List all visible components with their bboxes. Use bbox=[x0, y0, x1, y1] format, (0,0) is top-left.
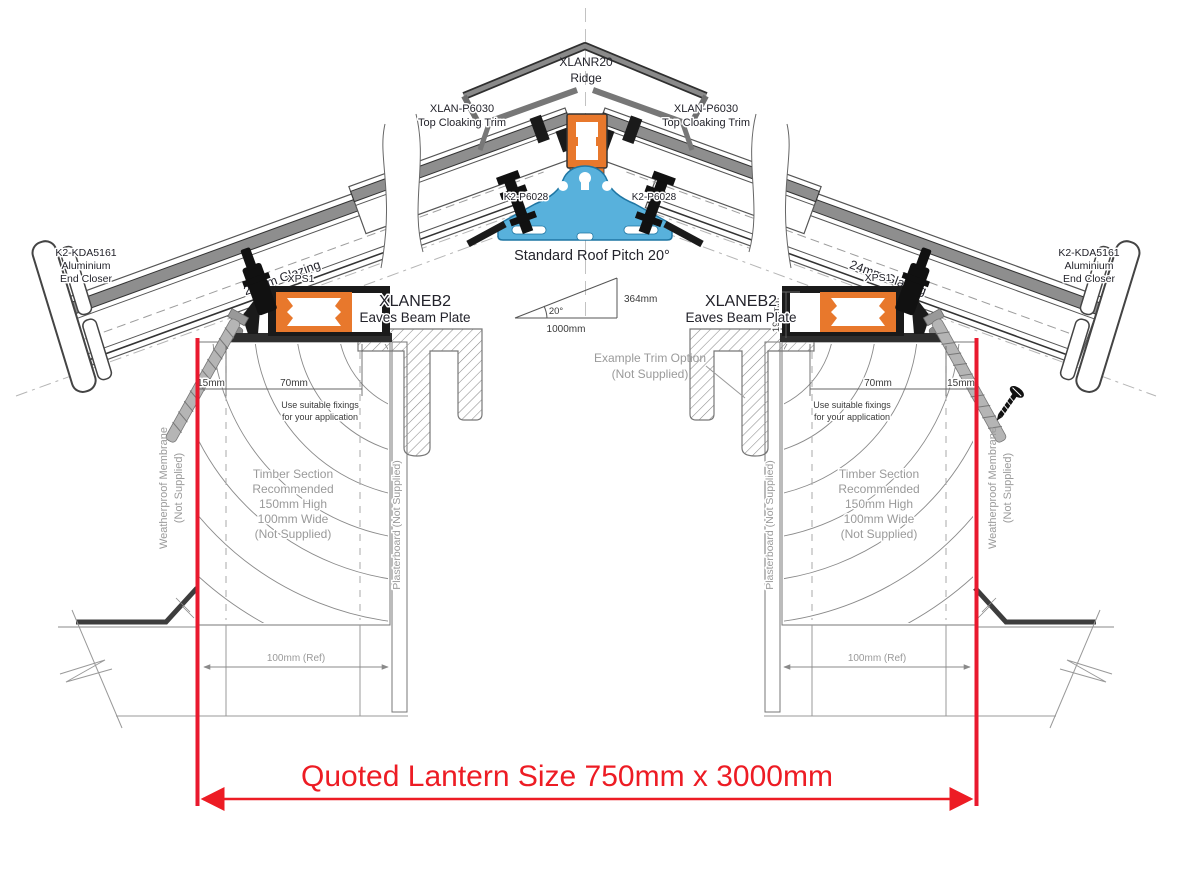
drawing-page: 24mm Glazing 24mm Glazing bbox=[0, 0, 1184, 872]
fixings-note-right-2: for your application bbox=[814, 412, 890, 422]
membrane-label-left-1: Weatherproof Membrane bbox=[158, 427, 170, 549]
pitch-title: Standard Roof Pitch 20° bbox=[514, 248, 670, 264]
end-closer-line2: Aluminium bbox=[61, 260, 110, 272]
dim-15mm-right: 15mm bbox=[947, 378, 975, 389]
fixings-note-right-1: Use suitable fixings bbox=[813, 400, 891, 410]
timber-note-line: Recommended bbox=[252, 482, 333, 496]
cloaking-trim-code-right: XLAN-P6030 bbox=[674, 103, 738, 115]
eaves-beam-name-right: Eaves Beam Plate bbox=[685, 310, 796, 325]
eaves-beam-code-left: XLANEB2 bbox=[379, 293, 451, 310]
pitch-angle-label: 20° bbox=[549, 306, 564, 317]
plasterboard-label-left: Plasterboard (Not Supplied) bbox=[391, 460, 403, 590]
fixings-note-left-1: Use suitable fixings bbox=[281, 400, 359, 410]
pitch-run-label: 1000mm bbox=[547, 324, 586, 335]
dim-70mm-left: 70mm bbox=[280, 378, 308, 389]
beam-chamber bbox=[831, 298, 885, 326]
timber-note-line: (Not Supplied) bbox=[841, 527, 918, 541]
quoted-size-text: Quoted Lantern Size 750mm x 3000mm bbox=[301, 760, 833, 793]
trim-option-callout: Example Trim Option (Not Supplied) bbox=[594, 351, 745, 398]
dim-15mm-left: 15mm bbox=[197, 378, 225, 389]
timber-note-line: Timber Section bbox=[839, 467, 919, 481]
timber-note-left: Timber Section Recommended 150mm High 10… bbox=[252, 467, 333, 541]
timber-note-right: Timber Section Recommended 150mm High 10… bbox=[838, 467, 919, 541]
end-closer-code: K2-KDA5161 bbox=[55, 247, 116, 259]
roof-lantern-cross-section-drawing: 24mm Glazing 24mm Glazing bbox=[0, 0, 1184, 872]
membrane-label-right-1: Weatherproof Membrane bbox=[987, 427, 999, 549]
xps-label-left: XPS1 bbox=[288, 273, 315, 285]
membrane-line-left bbox=[76, 588, 197, 622]
end-closer-label-right: K2-KDA5161 Aluminium End Closer bbox=[1058, 247, 1119, 285]
timber-note-line: 100mm Wide bbox=[844, 512, 915, 526]
dim-70mm-right: 70mm bbox=[864, 378, 892, 389]
dim-label: 100mm (Ref) bbox=[848, 653, 906, 664]
ridge-bolt-label-left: K2-P6028 bbox=[504, 192, 549, 203]
cloaking-trim-name-left: Top Cloaking Trim bbox=[418, 117, 506, 129]
end-closer-line3: End Closer bbox=[1063, 273, 1115, 285]
trim-option-line2: (Not Supplied) bbox=[612, 367, 689, 381]
end-closer-line2: Aluminium bbox=[1064, 260, 1113, 272]
timber-note-line: 100mm Wide bbox=[258, 512, 329, 526]
plasterboard-label-right: Plasterboard (Not Supplied) bbox=[764, 460, 776, 590]
panel-break-right bbox=[749, 114, 791, 268]
membrane-line-right bbox=[975, 588, 1096, 622]
timber-note-line: Recommended bbox=[838, 482, 919, 496]
pitch-triangle bbox=[515, 278, 617, 318]
break-line-left bbox=[72, 610, 122, 728]
cloaking-trim-name-right: Top Cloaking Trim bbox=[662, 117, 750, 129]
membrane-label-left-2: (Not Supplied) bbox=[173, 453, 185, 523]
trim-option-line1: Example Trim Option bbox=[594, 351, 706, 365]
end-closer-line3: End Closer bbox=[60, 273, 112, 285]
panel-break-left bbox=[381, 114, 423, 268]
fixings-note-left-2: for your application bbox=[282, 412, 358, 422]
timber-note-line: 150mm High bbox=[259, 497, 327, 511]
break-line-right bbox=[1050, 610, 1100, 728]
eaves-beam-code-right: XLANEB2 bbox=[705, 293, 777, 310]
break-mark-left bbox=[60, 660, 112, 682]
beam-chamber bbox=[287, 298, 341, 326]
ridge-name-label: Ridge bbox=[570, 71, 602, 85]
pitch-rise-label: 364mm bbox=[624, 294, 657, 305]
timber-note-line: Timber Section bbox=[253, 467, 333, 481]
timber-note-line: 150mm High bbox=[845, 497, 913, 511]
dim-label: 100mm (Ref) bbox=[267, 653, 325, 664]
membrane-label-right-2: (Not Supplied) bbox=[1002, 453, 1014, 523]
xps-label-right: XPS1 bbox=[865, 272, 892, 284]
ridge-bolt-label-right: K2-P6028 bbox=[632, 192, 677, 203]
end-closer-label-left: K2-KDA5161 Aluminium End Closer bbox=[55, 247, 116, 285]
end-closer-code: K2-KDA5161 bbox=[1058, 247, 1119, 259]
ridge-code-label: XLANR20 bbox=[559, 55, 613, 69]
timber-note-line: (Not Supplied) bbox=[255, 527, 332, 541]
ridge-thermal-break bbox=[567, 114, 607, 174]
cloaking-trim-code-left: XLAN-P6030 bbox=[430, 103, 494, 115]
eaves-beam-name-left: Eaves Beam Plate bbox=[359, 310, 470, 325]
break-mark-right bbox=[1060, 660, 1112, 682]
